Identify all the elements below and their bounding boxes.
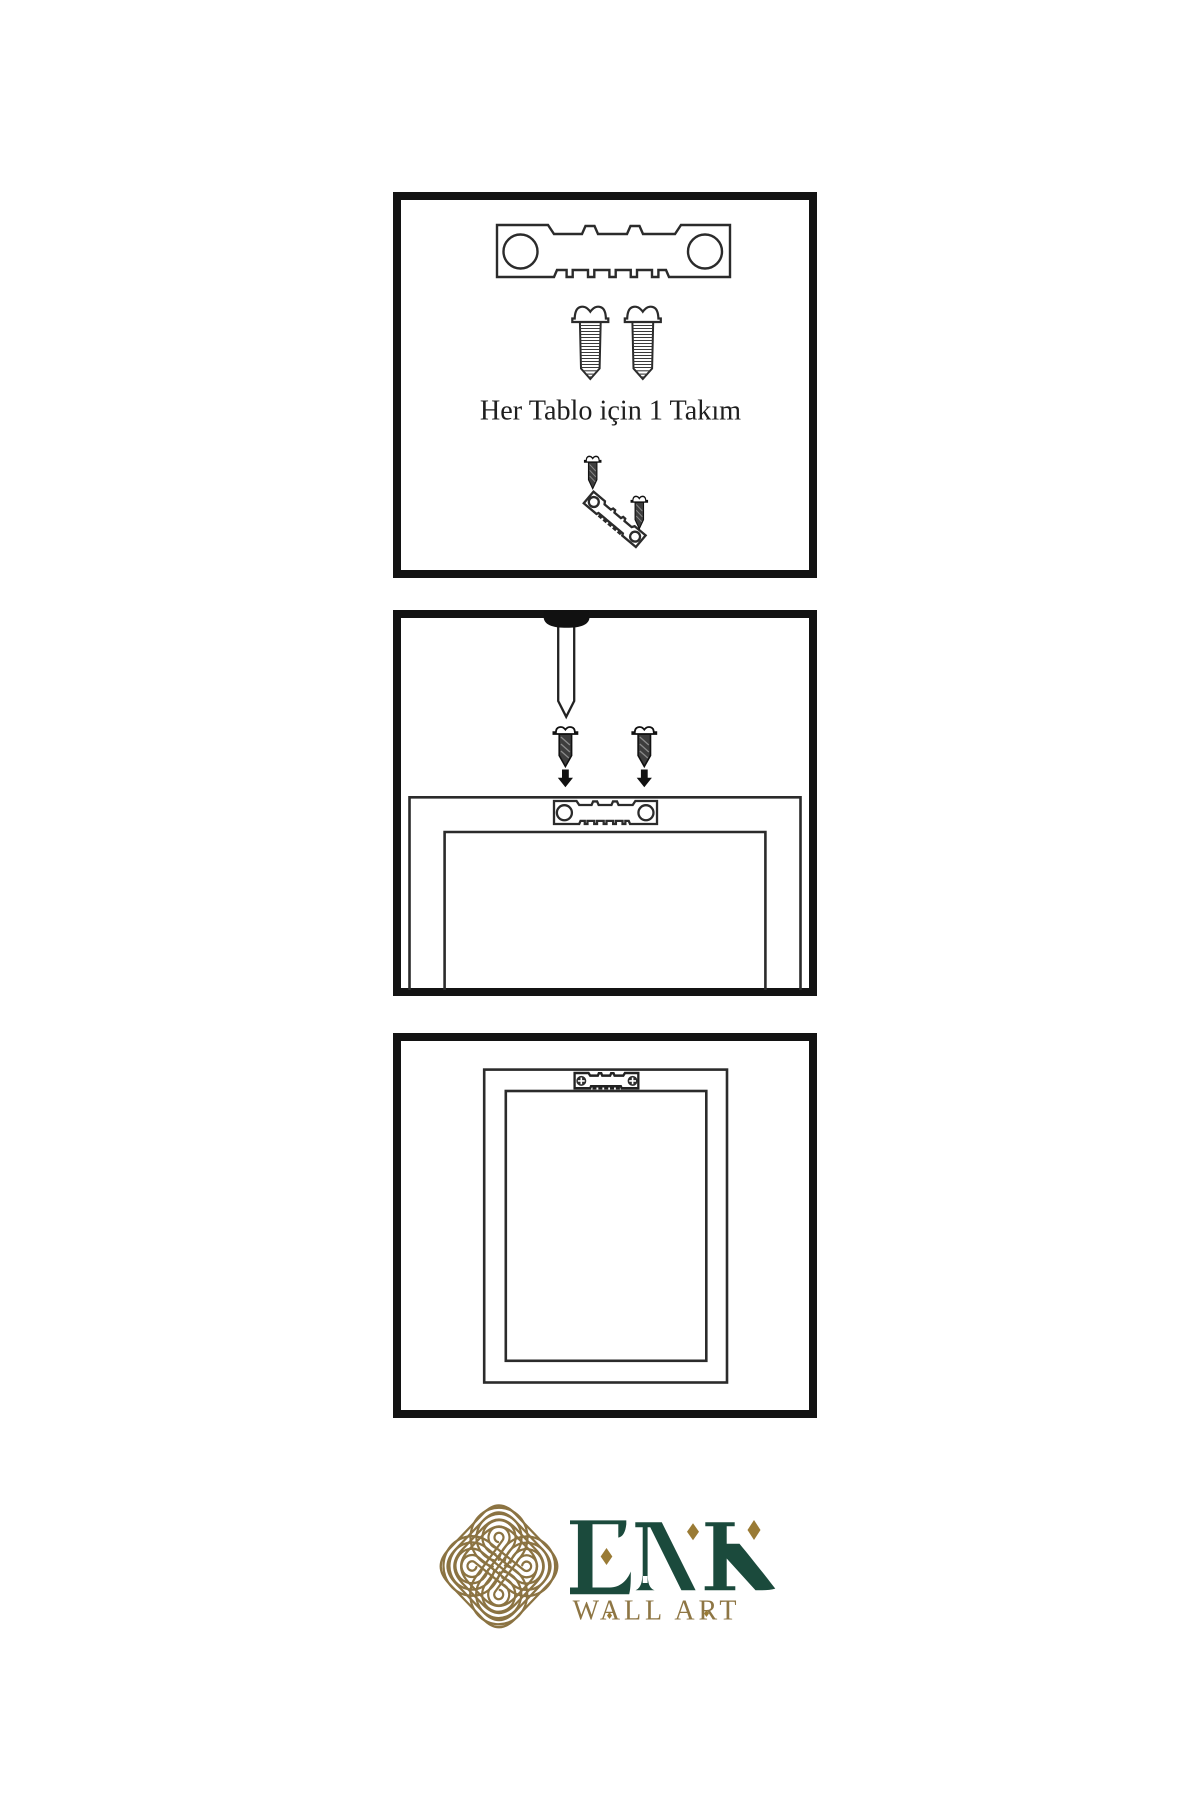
svg-text:Her Tablo için 1 Takım: Her Tablo için 1 Takım: [480, 396, 741, 427]
svg-text:WALL ART: WALL ART: [573, 1596, 741, 1627]
